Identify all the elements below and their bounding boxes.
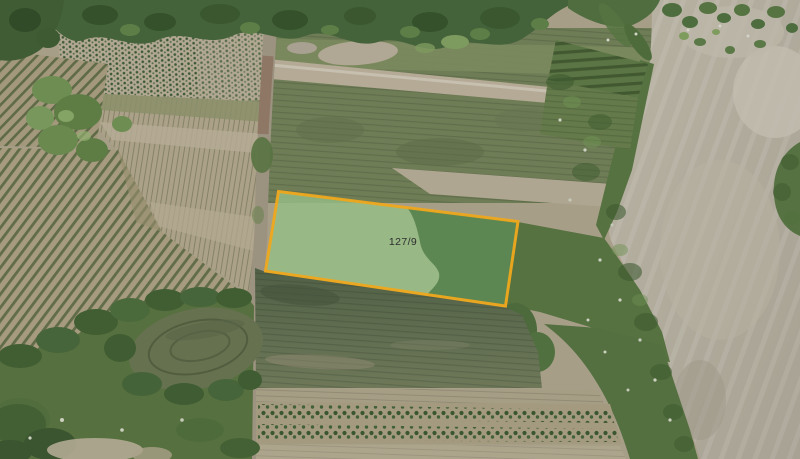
parcel-label: 127/9 [389, 236, 417, 248]
satellite-imagery: 127/9 [0, 0, 800, 459]
orchard-rows-bottom [256, 388, 626, 459]
map-viewport[interactable]: 127/9 [0, 0, 800, 459]
